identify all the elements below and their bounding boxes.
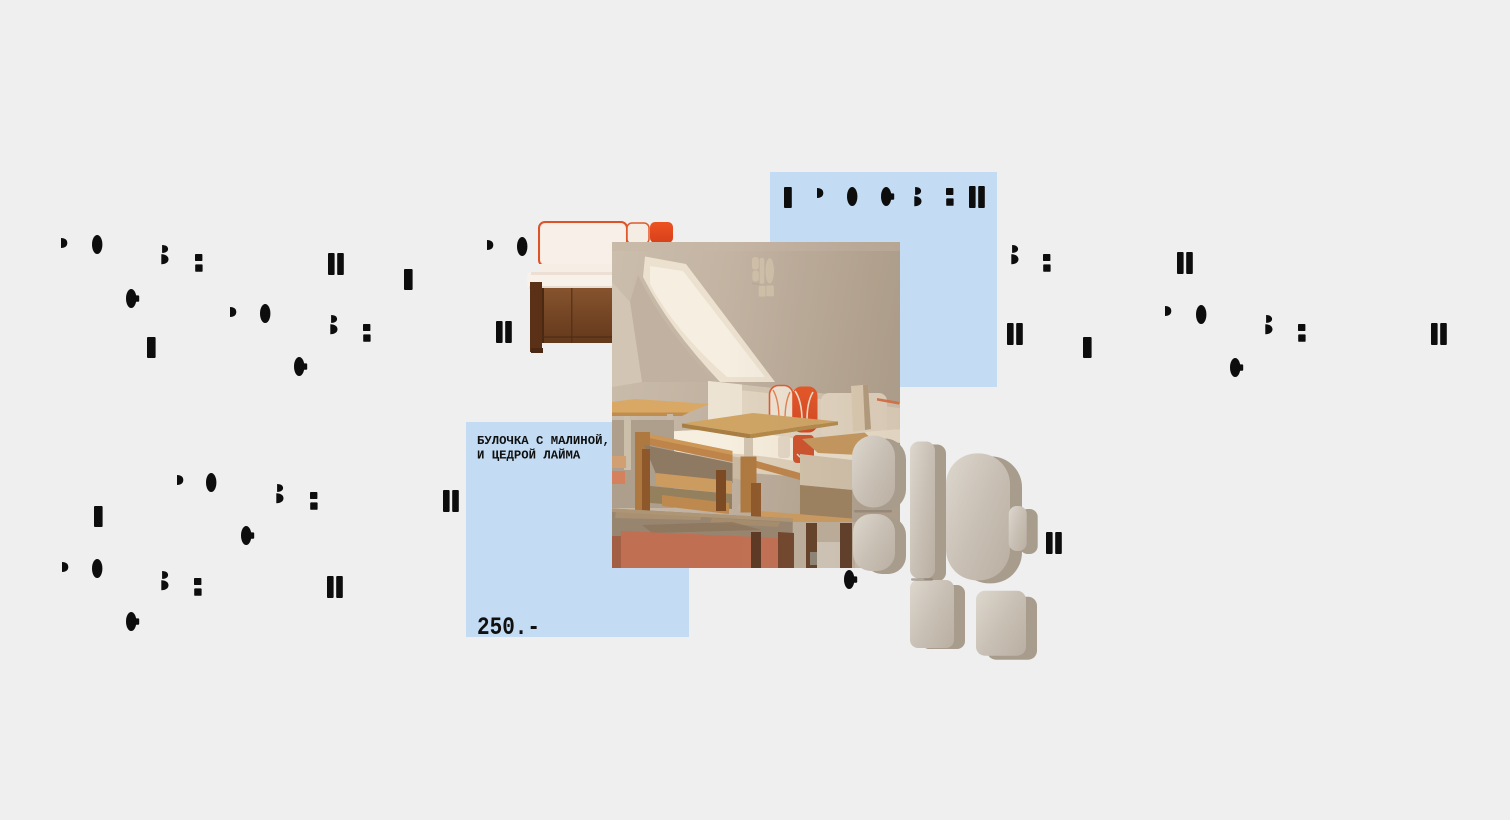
svg-text:250.-: 250.- xyxy=(477,614,540,642)
svg-text:БУЛОЧКА С МАЛИНОЙ,: БУЛОЧКА С МАЛИНОЙ, xyxy=(477,433,610,448)
svg-text:И ЦЕДРОЙ ЛАЙМА: И ЦЕДРОЙ ЛАЙМА xyxy=(477,448,581,463)
